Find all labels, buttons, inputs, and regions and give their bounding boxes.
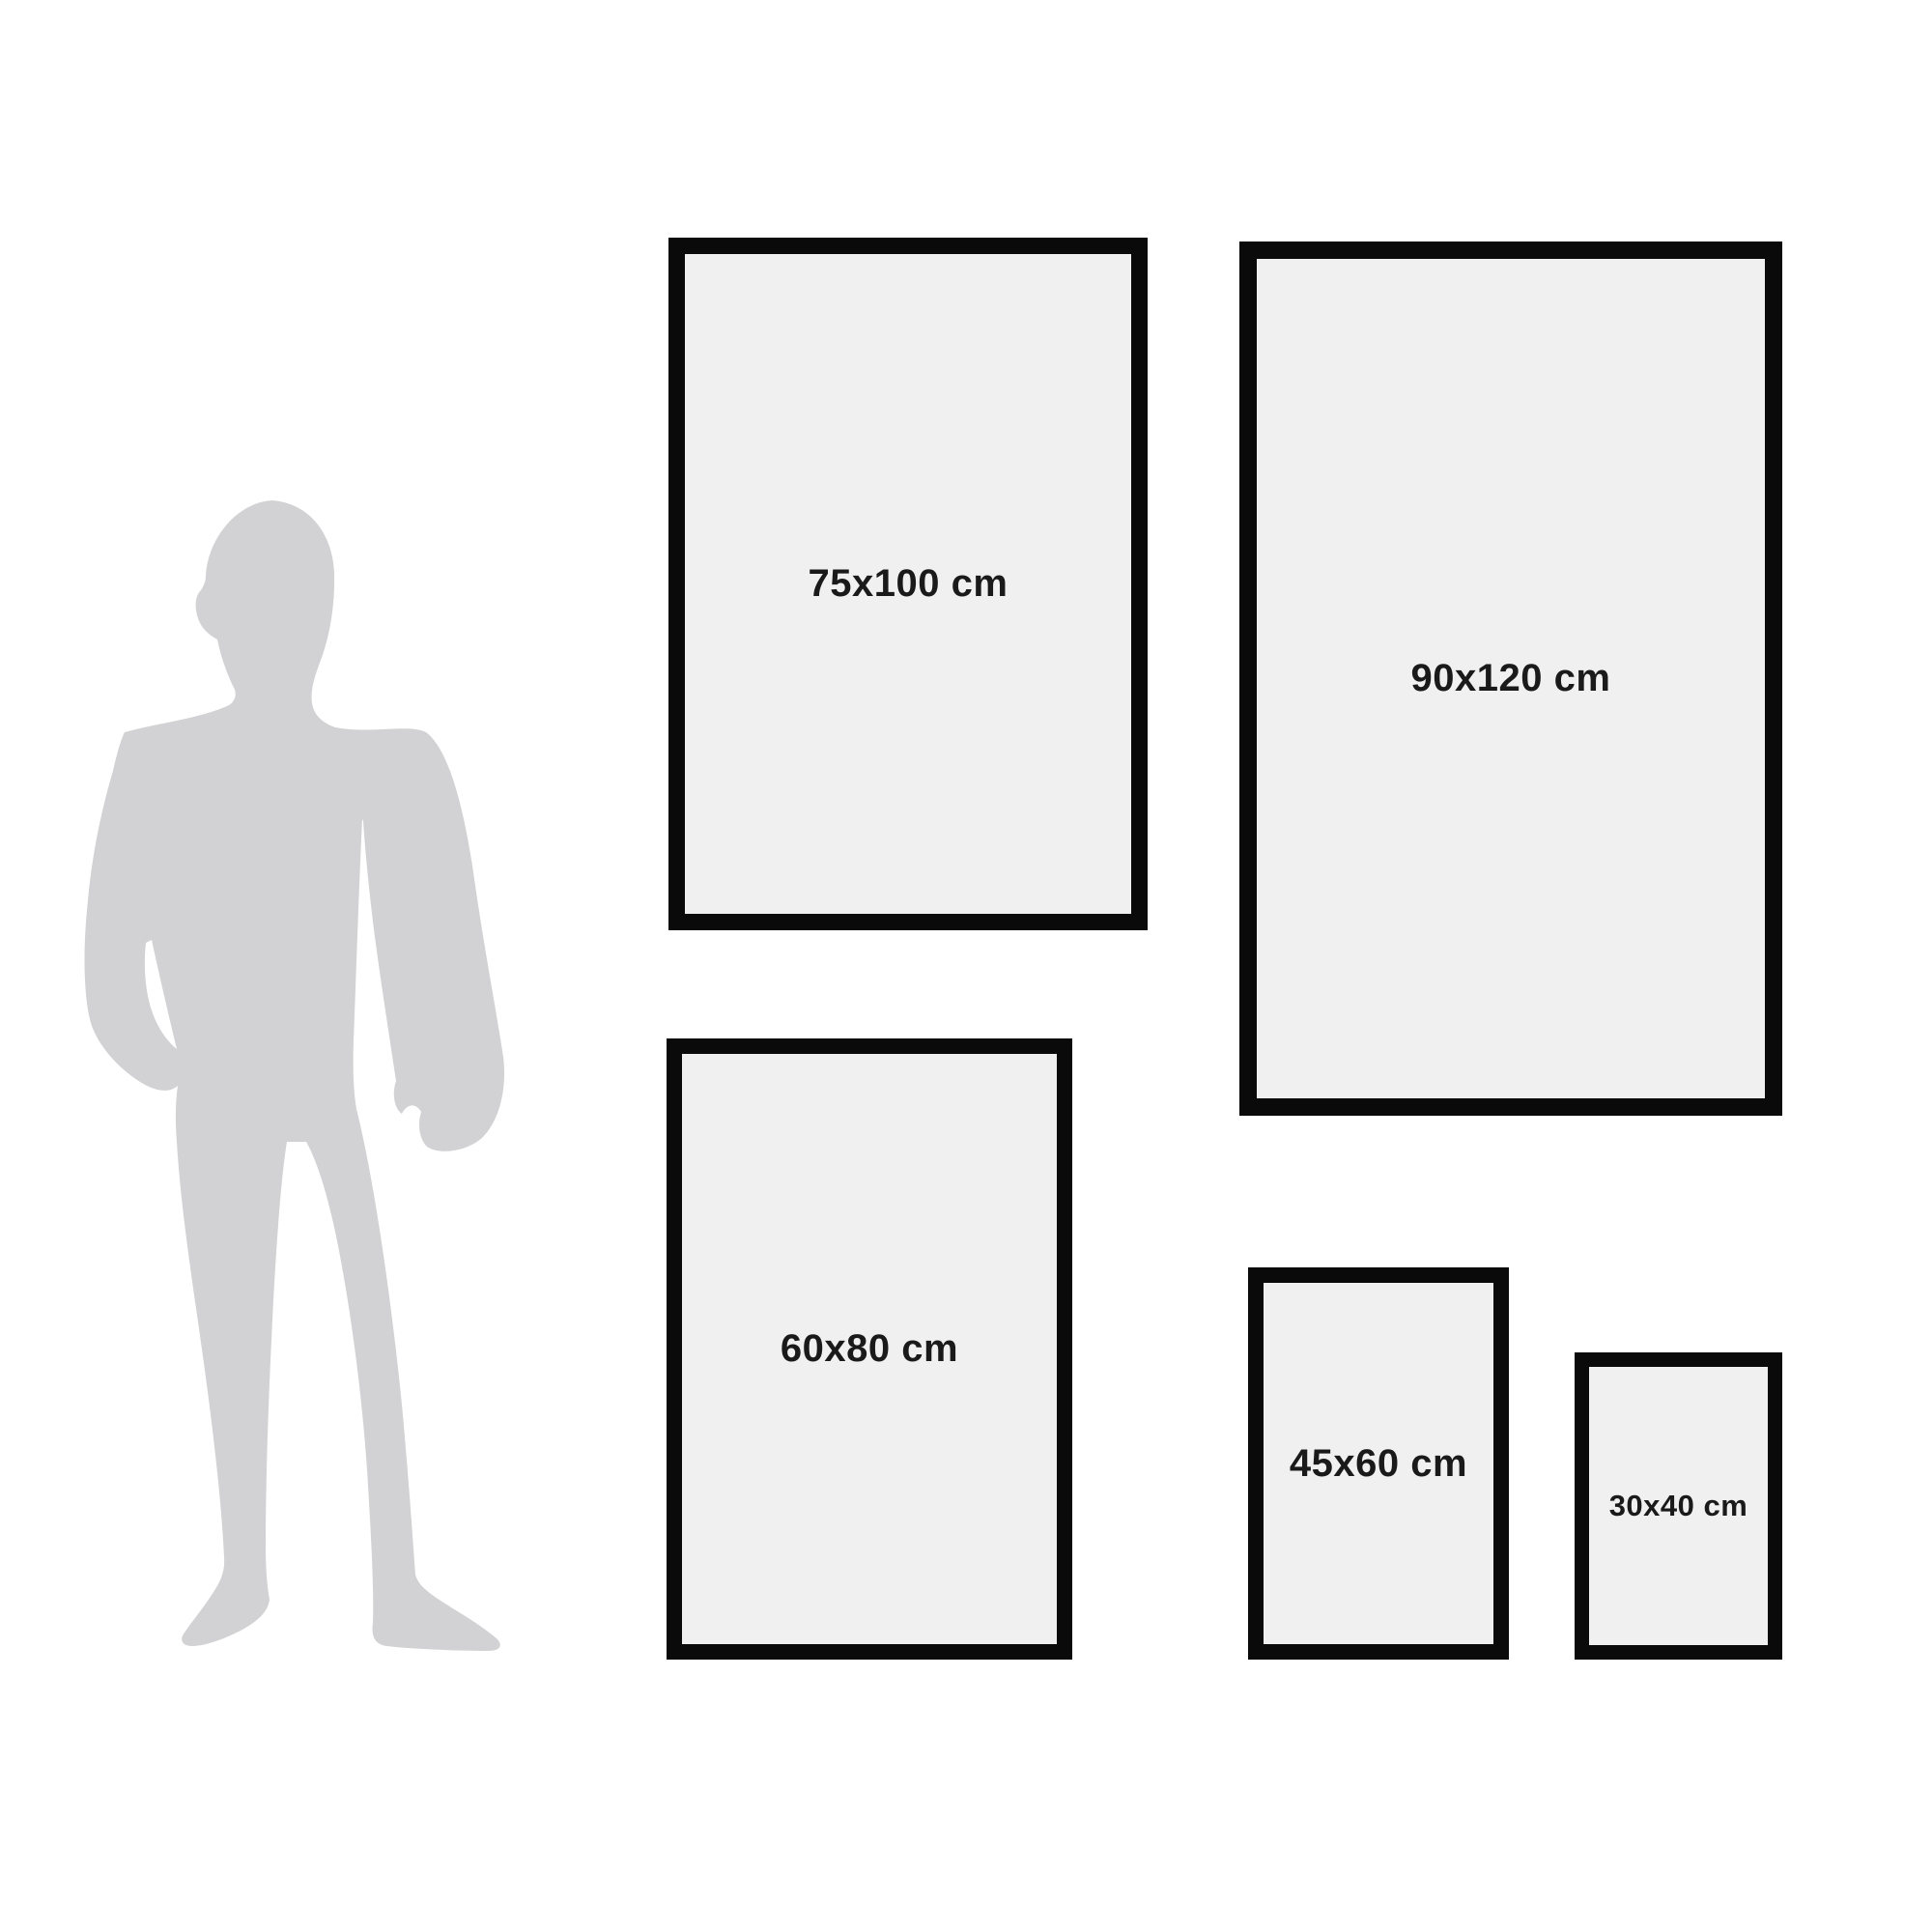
frame-45x60-label: 45x60 cm [1290, 1442, 1467, 1486]
frame-75x100-label: 75x100 cm [809, 562, 1009, 606]
frame-90x120: 90x120 cm [1239, 241, 1782, 1116]
frame-90x120-label: 90x120 cm [1411, 657, 1611, 700]
frame-30x40: 30x40 cm [1575, 1352, 1782, 1660]
frame-75x100: 75x100 cm [668, 238, 1148, 930]
size-guide-canvas: 75x100 cm 90x120 cm 60x80 cm 45x60 cm 30… [0, 0, 1932, 1932]
person-silhouette-icon [82, 500, 507, 1660]
frame-45x60: 45x60 cm [1248, 1267, 1509, 1660]
frame-30x40-label: 30x40 cm [1609, 1489, 1748, 1523]
frame-60x80: 60x80 cm [667, 1038, 1072, 1660]
frame-60x80-label: 60x80 cm [781, 1327, 958, 1371]
